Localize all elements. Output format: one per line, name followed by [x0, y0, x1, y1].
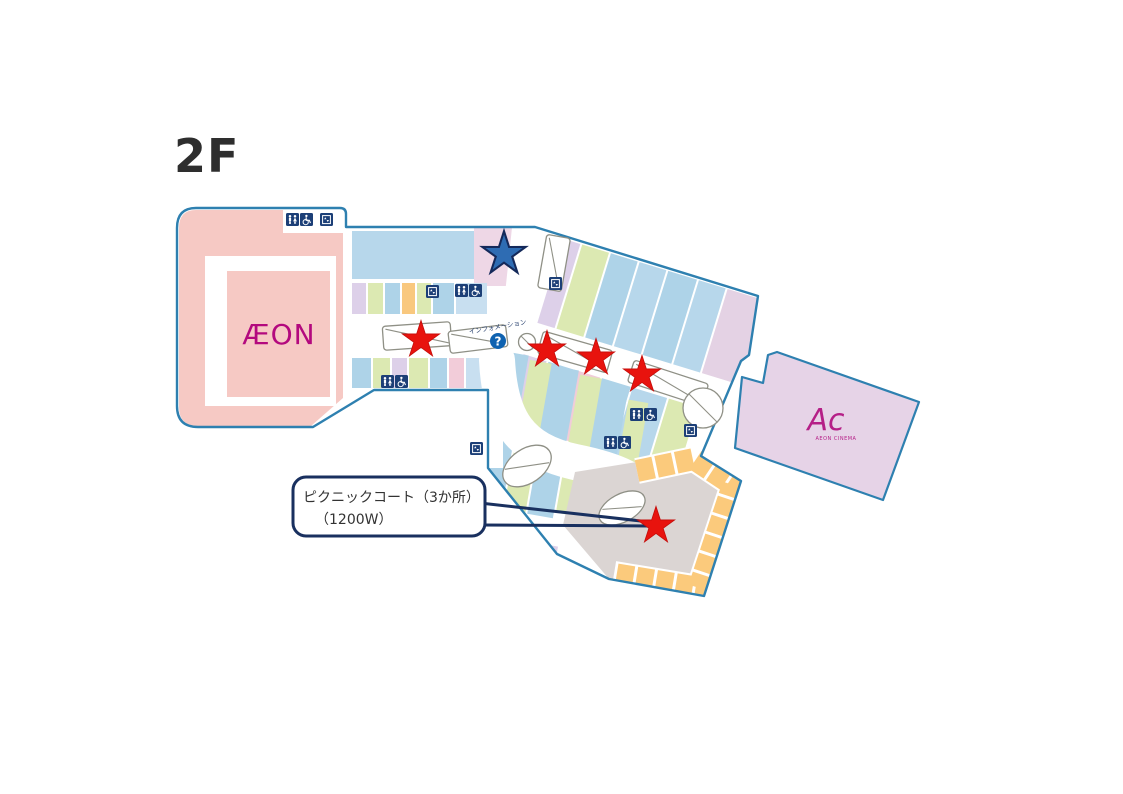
restroom-icon — [630, 408, 643, 421]
cinema-building: Ac AEON CINEMA — [735, 352, 919, 500]
wheelchair-icon — [469, 284, 482, 297]
restroom-icon — [286, 213, 299, 226]
elevator-icon — [320, 213, 333, 226]
cinema-logo: Ac — [805, 403, 845, 438]
information-symbol: ? — [495, 335, 502, 349]
restroom-icon — [455, 284, 468, 297]
restroom-icon — [604, 436, 617, 449]
elevator-icon — [470, 442, 483, 455]
wheelchair-icon — [395, 375, 408, 388]
callout-line1: ピクニックコート（3か所） — [303, 490, 480, 506]
mall-interior — [170, 200, 772, 610]
wheelchair-icon — [644, 408, 657, 421]
elevator-icon — [684, 424, 697, 437]
elevator-icon — [549, 277, 562, 290]
floor-map-page: 2F — [0, 0, 1123, 794]
callout-line2: （1200W） — [315, 512, 392, 528]
wheelchair-icon — [300, 213, 313, 226]
restroom-icon — [381, 375, 394, 388]
elevator-icon — [426, 285, 439, 298]
floor-map: 2F — [0, 0, 1123, 794]
page-title: 2F — [174, 129, 239, 183]
wheelchair-icon — [618, 436, 631, 449]
stair-symbol — [683, 388, 723, 428]
stair-symbol — [519, 334, 536, 351]
cinema-caption: AEON CINEMA — [816, 436, 857, 442]
aeon-logo: ÆON — [242, 318, 315, 351]
